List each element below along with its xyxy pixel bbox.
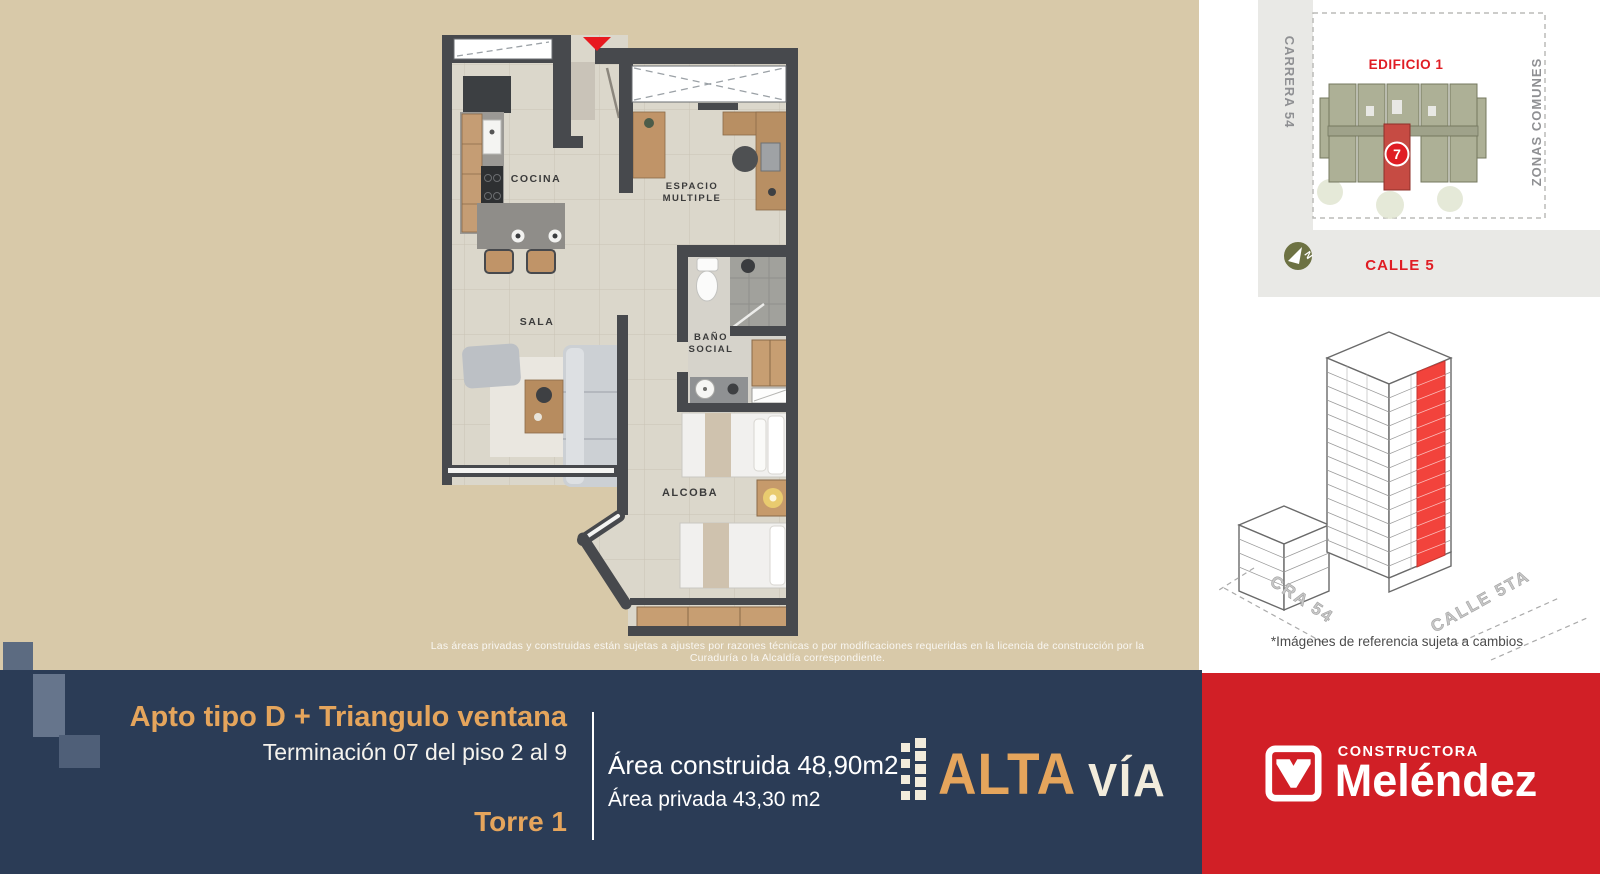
altavia-logo: ALTAVÍA xyxy=(901,736,1171,800)
render-label-calle-5ta: CALLE 5TA xyxy=(1428,566,1534,636)
closet-door xyxy=(752,340,788,386)
toilet xyxy=(697,258,719,301)
melendez-name: Meléndez xyxy=(1335,758,1538,803)
area-private: Área privada 43,30 m2 xyxy=(608,788,899,812)
vanity xyxy=(690,377,748,403)
melendez-m-icon xyxy=(1265,745,1322,802)
bed-1 xyxy=(682,413,788,477)
shower xyxy=(730,253,788,330)
desk-chair xyxy=(732,146,758,172)
entry-ramp xyxy=(567,62,595,120)
north-badge: N xyxy=(1283,241,1315,271)
kitchen-sink xyxy=(483,120,501,154)
vertical-divider xyxy=(592,712,594,840)
apartment-subtitle: Terminación 07 del piso 2 al 9 xyxy=(95,739,567,766)
tower-label: Torre 1 xyxy=(95,806,567,838)
label-bano-1: BAÑO xyxy=(694,332,728,343)
label-edificio-1: EDIFICIO 1 xyxy=(1369,57,1444,72)
label-zonas-comunes: ZONAS COMUNES xyxy=(1529,58,1544,187)
armchair xyxy=(462,343,522,389)
decor-square-2 xyxy=(33,674,65,737)
wardrobe xyxy=(637,607,790,628)
label-alcoba: ALCOBA xyxy=(662,487,718,499)
kitchen-window xyxy=(454,39,552,59)
kitchen-fridge xyxy=(463,76,511,113)
multi-bench xyxy=(633,112,665,178)
site-map: CARRERA 54 ZONAS COMUNES EDIFICIO 1 xyxy=(1199,0,1600,300)
bed-2 xyxy=(680,523,788,588)
area-built: Área construida 48,90m2 xyxy=(608,750,899,781)
label-calle-5: CALLE 5 xyxy=(1365,257,1435,274)
legal-disclaimer: Las áreas privadas y construidas están s… xyxy=(405,641,1170,664)
multi-room-window xyxy=(632,66,786,102)
melendez-brand-block: CONSTRUCTORA Meléndez xyxy=(1202,673,1600,874)
highlighted-unit-stack xyxy=(1417,361,1445,567)
sidebar-panel: CARRERA 54 ZONAS COMUNES EDIFICIO 1 xyxy=(1199,0,1600,673)
building-footprint: 7 xyxy=(1320,84,1486,190)
label-espacio-1: ESPACIO xyxy=(666,181,719,192)
desk-monitor xyxy=(761,143,780,171)
decor-square-3 xyxy=(59,735,100,768)
altavia-wordmark-alta: ALTA xyxy=(938,751,1076,800)
apartment-title: Apto tipo D + Triangulo ventana xyxy=(95,700,567,734)
label-carrera-54: CARRERA 54 xyxy=(1282,36,1297,129)
floorplan: COCINA SALA ESPACIO MULTIPLE BAÑO SOCIAL… xyxy=(420,20,810,645)
areas-block: Área construida 48,90m2 Área privada 43,… xyxy=(608,750,899,812)
apartment-title-block: Apto tipo D + Triangulo ventana Terminac… xyxy=(95,700,567,766)
label-cocina: COCINA xyxy=(511,173,561,185)
nightstand xyxy=(757,480,788,516)
unit-7-number: 7 xyxy=(1393,146,1401,162)
decor-square-1 xyxy=(3,642,33,670)
reference-note: *Imágenes de referencia sujeta a cambios xyxy=(1271,634,1523,649)
kitchen-island xyxy=(477,203,565,249)
sala-window xyxy=(448,468,614,473)
altavia-dots-icon xyxy=(901,735,926,800)
altavia-wordmark-via: VÍA xyxy=(1088,761,1167,800)
coffee-table xyxy=(525,380,563,433)
label-espacio-2: MULTIPLE xyxy=(663,193,722,204)
label-bano-2: SOCIAL xyxy=(689,344,734,355)
label-sala: SALA xyxy=(520,316,555,328)
towel-shelf xyxy=(752,388,788,403)
building-render: CRA 54 CALLE 5TA *Imágenes de referencia… xyxy=(1199,310,1600,670)
